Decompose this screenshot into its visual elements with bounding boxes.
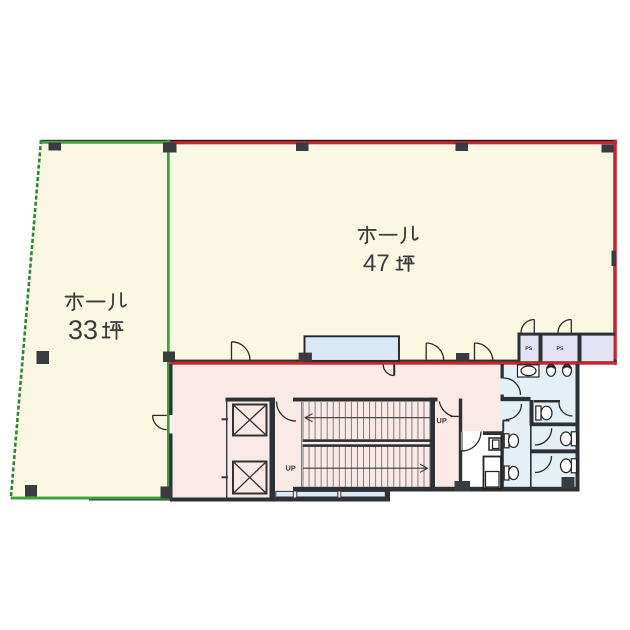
svg-text:UP: UP: [285, 464, 295, 473]
svg-text:47: 47: [363, 250, 390, 277]
svg-text:33: 33: [68, 315, 98, 345]
svg-text:UP: UP: [436, 416, 446, 425]
svg-text:PS: PS: [525, 346, 532, 352]
svg-text:PS: PS: [556, 346, 563, 352]
